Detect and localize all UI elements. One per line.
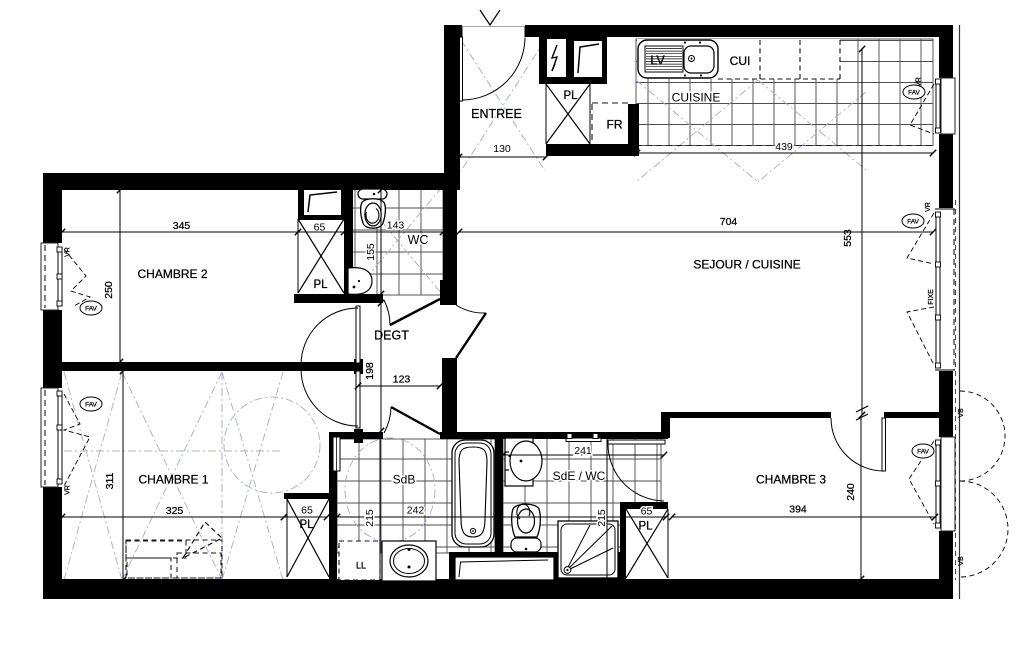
- svg-text:123: 123: [393, 374, 411, 386]
- svg-text:VR: VR: [65, 485, 72, 495]
- svg-text:CHAMBRE 1: CHAMBRE 1: [138, 473, 208, 487]
- svg-text:FAV: FAV: [917, 449, 929, 456]
- svg-text:SdB: SdB: [393, 473, 416, 487]
- svg-text:FAV: FAV: [85, 402, 97, 409]
- svg-text:241: 241: [574, 445, 592, 457]
- svg-text:198: 198: [364, 362, 376, 380]
- svg-text:CHAMBRE 3: CHAMBRE 3: [756, 473, 826, 487]
- svg-text:155: 155: [365, 243, 377, 261]
- svg-text:PL: PL: [638, 521, 653, 533]
- svg-text:DEGT: DEGT: [374, 329, 409, 343]
- svg-text:553: 553: [842, 229, 854, 247]
- svg-text:PL: PL: [299, 519, 314, 531]
- svg-text:311: 311: [104, 472, 116, 489]
- svg-text:LL: LL: [356, 561, 366, 571]
- svg-text:CUISINE: CUISINE: [672, 91, 721, 105]
- svg-text:SEJOUR / CUISINE: SEJOUR / CUISINE: [693, 258, 800, 272]
- svg-text:FR: FR: [607, 118, 623, 132]
- svg-text:WC: WC: [408, 233, 429, 247]
- svg-text:SdE / WC: SdE / WC: [553, 469, 606, 483]
- svg-text:394: 394: [789, 504, 807, 516]
- svg-text:CHAMBRE 2: CHAMBRE 2: [137, 267, 207, 281]
- svg-text:215: 215: [364, 509, 376, 527]
- svg-text:PL: PL: [563, 90, 578, 102]
- svg-text:FAV: FAV: [85, 306, 97, 313]
- svg-text:65: 65: [641, 506, 653, 518]
- svg-text:325: 325: [166, 505, 184, 517]
- svg-text:215: 215: [596, 509, 608, 527]
- svg-text:CUI: CUI: [730, 54, 751, 68]
- svg-text:PL: PL: [313, 279, 328, 291]
- svg-text:LV: LV: [650, 54, 665, 68]
- svg-text:130: 130: [493, 143, 511, 155]
- svg-text:439: 439: [775, 141, 793, 153]
- svg-text:FAV: FAV: [907, 219, 919, 226]
- svg-text:FIXE: FIXE: [928, 289, 935, 305]
- svg-text:VR: VR: [925, 202, 932, 212]
- svg-text:ENTREE: ENTREE: [471, 107, 522, 121]
- svg-text:VB: VB: [958, 556, 965, 566]
- svg-text:250: 250: [103, 281, 115, 299]
- svg-text:143: 143: [387, 220, 405, 232]
- svg-text:FAV: FAV: [908, 90, 920, 97]
- svg-text:240: 240: [845, 483, 857, 501]
- svg-text:VR: VR: [65, 247, 72, 257]
- svg-text:65: 65: [301, 505, 313, 517]
- svg-text:242: 242: [407, 505, 425, 517]
- svg-text:345: 345: [173, 220, 191, 232]
- svg-text:704: 704: [720, 216, 738, 228]
- svg-text:VB: VB: [958, 408, 965, 418]
